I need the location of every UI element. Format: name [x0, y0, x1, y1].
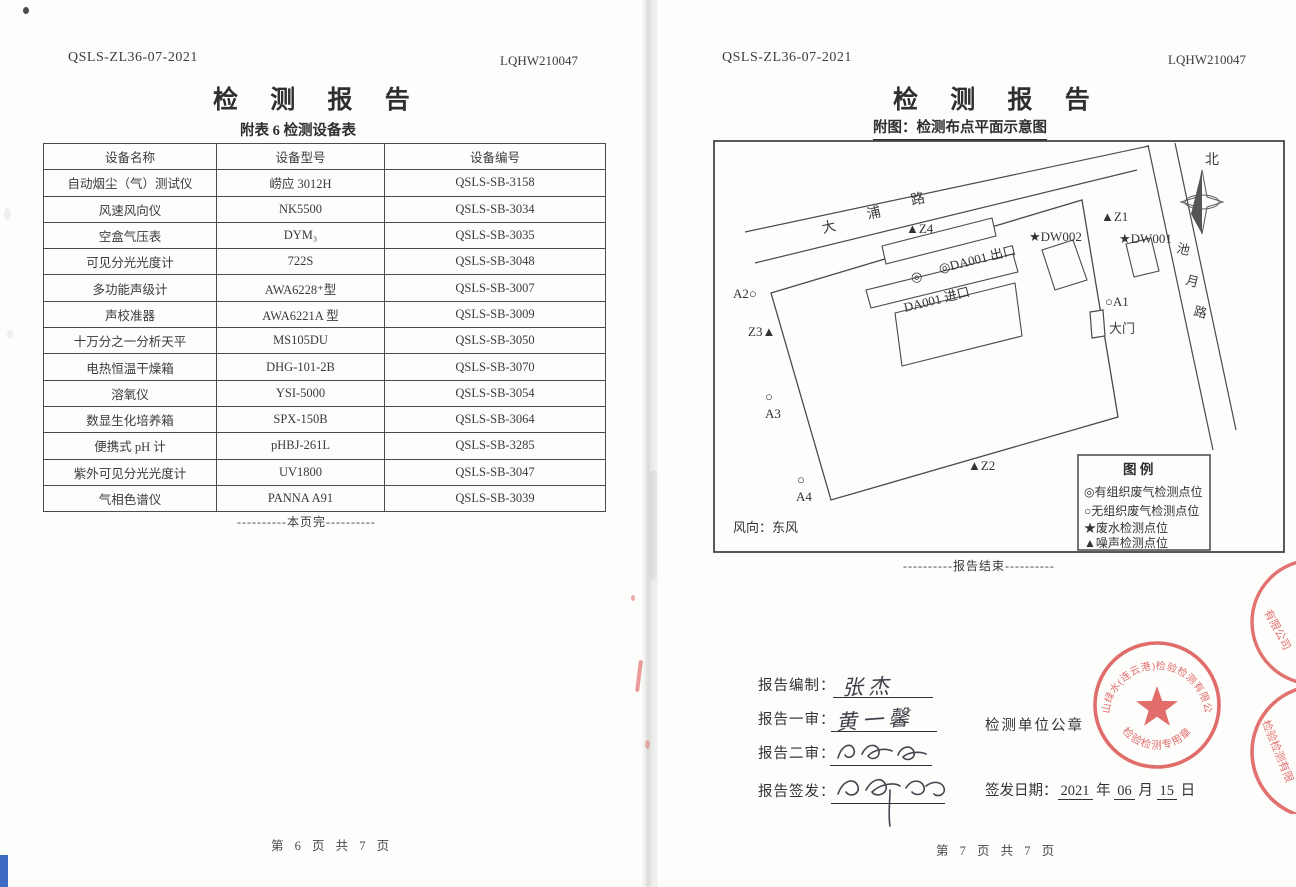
svg-text:检验检测专用章: 检验检测专用章: [1120, 725, 1195, 752]
legend-item: ★废水检测点位: [1084, 520, 1168, 535]
table-row: 十万分之一分析天平MS105DUQSLS-SB-3050: [44, 328, 606, 354]
equipment-table: 设备名称 设备型号 设备编号 自动烟尘（气）测试仪崂应 3012HQSLS-SB…: [43, 143, 606, 512]
cell-name: 多功能声级计: [44, 275, 217, 301]
issued-by-signature: [830, 768, 960, 830]
marker-a1: ○A1: [1105, 294, 1129, 309]
issue-date-month: 06: [1114, 783, 1135, 800]
cell-no: QSLS-SB-3158: [385, 170, 606, 196]
month-suffix: 月: [1138, 783, 1153, 799]
road-name-char: 路: [1192, 303, 1208, 321]
cell-model: DHG-101-2B: [217, 354, 385, 380]
marker-dw002: ★DW002: [1029, 229, 1082, 244]
cell-name: 空盒气压表: [44, 222, 217, 248]
report-number: LQHW210047: [500, 53, 578, 69]
edge-seal-fragments: 有限公司 检验检测有限: [1238, 552, 1296, 814]
north-label: 北: [1205, 152, 1219, 168]
day-suffix: 日: [1181, 783, 1196, 799]
page-number: 第 7 页 共 7 页: [936, 840, 1058, 859]
table-row: 气相色谱仪PANNA A91QSLS-SB-3039: [44, 485, 606, 511]
doc-code: QSLS-ZL36-07-2021: [722, 50, 852, 66]
report-end-marker: ----------报告结束----------: [903, 557, 1055, 574]
issue-date: 签发日期：2021 年 06 月 15 日: [985, 779, 1195, 800]
issue-date-year: 2021: [1058, 783, 1093, 800]
doc-code: QSLS-ZL36-07-2021: [68, 50, 198, 66]
legend-title: 图 例: [1123, 461, 1153, 477]
cell-model: AWA6221A 型: [217, 301, 385, 327]
table-row: 自动烟尘（气）测试仪崂应 3012HQSLS-SB-3158: [44, 170, 606, 196]
cell-name: 数显生化培养箱: [44, 406, 217, 432]
cell-no: QSLS-SB-3009: [385, 301, 606, 327]
cell-model: AWA6228⁺型: [217, 275, 385, 301]
second-review-signature: [832, 736, 942, 768]
diagram-subtitle: 附图：检测布点平面示意图: [873, 116, 1047, 141]
marker-a3-circle: ○: [765, 389, 773, 404]
table-row: 便携式 pH 计pHBJ-261LQSLS-SB-3285: [44, 433, 606, 459]
table-row: 可见分光光度计722SQSLS-SB-3048: [44, 249, 606, 275]
company-seal-stamp: 青山绿水(连云港)检验检测有限公司 检验检测专用章: [1087, 635, 1227, 775]
cell-name: 紫外可见分光光度计: [44, 459, 217, 485]
cell-model: UV1800: [217, 459, 385, 485]
col-header-name: 设备名称: [44, 144, 217, 170]
first-review-label: 报告一审：: [758, 708, 836, 729]
edge-seal-text: 检验检测有限: [1259, 718, 1296, 784]
cell-model: YSI-5000: [217, 380, 385, 406]
marker-dw001: ★DW001: [1119, 231, 1172, 246]
red-ink-bleed: [631, 595, 635, 601]
table-row: 多功能声级计AWA6228⁺型QSLS-SB-3007: [44, 275, 606, 301]
cell-name: 溶氧仪: [44, 380, 217, 406]
marker-a4-circle: ○: [797, 472, 805, 487]
scan-smudge: [7, 330, 13, 339]
gate-rect: [1090, 310, 1105, 338]
road-name-char: 月: [1184, 272, 1200, 290]
cell-no: QSLS-SB-3285: [385, 433, 606, 459]
issue-date-label: 签发日期：: [985, 783, 1058, 799]
marker-z1: ▲Z1: [1101, 209, 1128, 224]
road-name-char: 池: [1175, 240, 1191, 258]
seal-type-text: 检验检测专用章: [1120, 725, 1195, 752]
unit-seal-caption: 检测单位公章: [985, 714, 1084, 735]
marker-z3: Z3▲: [748, 324, 775, 339]
table-row: 紫外可见分光光度计UV1800QSLS-SB-3047: [44, 459, 606, 485]
wind-direction: 风向：东风: [733, 520, 798, 535]
page-title: 检 测 报 告: [213, 80, 423, 116]
col-header-model: 设备型号: [217, 144, 385, 170]
site-layout-diagram: 大 浦 路 池 月 路 北 大门 ▲Z4 ★DW002 ▲Z1 ★DW001 ◎…: [713, 140, 1285, 553]
scan-speck: [23, 7, 29, 14]
marker-a3: A3: [765, 406, 781, 421]
legend-item: ○无组织废气检测点位: [1084, 503, 1199, 518]
red-ink-bleed: [645, 740, 650, 749]
table-header-row: 设备名称 设备型号 设备编号: [44, 144, 606, 170]
marker-z2: ▲Z2: [968, 458, 995, 473]
cell-no: QSLS-SB-3048: [385, 249, 606, 275]
scan-smudge: [4, 208, 11, 220]
cell-no: QSLS-SB-3035: [385, 222, 606, 248]
cell-name: 可见分光光度计: [44, 249, 217, 275]
table-row: 风速风向仪NK5500QSLS-SB-3034: [44, 196, 606, 222]
gate-label: 大门: [1109, 321, 1135, 336]
cell-no: QSLS-SB-3054: [385, 380, 606, 406]
seal-star-icon: [1136, 686, 1178, 726]
cell-model: SPX-150B: [217, 406, 385, 432]
table-row: 溶氧仪YSI-5000QSLS-SB-3054: [44, 380, 606, 406]
chiyue-road-line: [1148, 145, 1213, 450]
dapu-road-line: [745, 146, 1149, 232]
page-end-marker: ----------本页完----------: [237, 513, 376, 530]
year-suffix: 年: [1096, 783, 1111, 799]
cell-no: QSLS-SB-3007: [385, 275, 606, 301]
cell-model: 722S: [217, 249, 385, 275]
cell-name: 声校准器: [44, 301, 217, 327]
building: [1042, 240, 1087, 290]
prepared-by-signature: 张杰: [841, 670, 894, 702]
cell-name: 十万分之一分析天平: [44, 328, 217, 354]
report-page-6: QSLS-ZL36-07-2021 LQHW210047 检 测 报 告 附表 …: [0, 0, 646, 887]
cell-name: 便携式 pH 计: [44, 433, 217, 459]
marker-a2: A2○: [733, 286, 757, 301]
table-row: 数显生化培养箱SPX-150BQSLS-SB-3064: [44, 406, 606, 432]
page-title: 检 测 报 告: [893, 80, 1103, 116]
cell-name: 气相色谱仪: [44, 485, 217, 511]
table-row: 电热恒温干燥箱DHG-101-2BQSLS-SB-3070: [44, 354, 606, 380]
legend-box: 图 例 ◎有组织废气检测点位 ○无组织废气检测点位 ★废水检测点位 ▲噪声检测点…: [1078, 455, 1210, 550]
marker-z4: ▲Z4: [906, 221, 934, 236]
cell-model: pHBJ-261L: [217, 433, 385, 459]
scan-smudge: [650, 470, 657, 580]
cell-model: MS105DU: [217, 328, 385, 354]
page-number: 第 6 页 共 7 页: [271, 835, 393, 854]
marker-organized-symbol: ◎: [911, 269, 922, 284]
cell-no: QSLS-SB-3039: [385, 485, 606, 511]
cell-name: 自动烟尘（气）测试仪: [44, 170, 217, 196]
edge-seal-text: 有限公司: [1261, 607, 1294, 652]
cell-name: 电热恒温干燥箱: [44, 354, 217, 380]
cell-model: 崂应 3012H: [217, 170, 385, 196]
cell-no: QSLS-SB-3070: [385, 354, 606, 380]
cell-no: QSLS-SB-3034: [385, 196, 606, 222]
cell-no: QSLS-SB-3047: [385, 459, 606, 485]
cell-name: 风速风向仪: [44, 196, 217, 222]
road-name-char: 浦: [865, 204, 882, 223]
page-seam: [642, 0, 658, 887]
legend-item: ◎有组织废气检测点位: [1084, 484, 1202, 499]
report-number: LQHW210047: [1168, 52, 1246, 68]
report-page-7: QSLS-ZL36-07-2021 LQHW210047 检 测 报 告 附图：…: [650, 0, 1296, 887]
road-name-char: 路: [909, 190, 926, 209]
col-header-no: 设备编号: [385, 144, 606, 170]
issue-date-day: 15: [1157, 783, 1178, 800]
second-review-label: 报告二审：: [758, 742, 836, 763]
cell-model: NK5500: [217, 196, 385, 222]
table-row: 空盒气压表DYM₃QSLS-SB-3035: [44, 222, 606, 248]
cell-model: PANNA A91: [217, 485, 385, 511]
cell-no: QSLS-SB-3064: [385, 406, 606, 432]
first-review-signature: 黄一馨: [835, 701, 915, 736]
prepared-by-label: 报告编制：: [758, 674, 836, 695]
road-name-char: 大: [820, 218, 837, 237]
cell-no: QSLS-SB-3050: [385, 328, 606, 354]
issued-by-label: 报告签发：: [758, 780, 836, 801]
table-subtitle: 附表 6 检测设备表: [240, 119, 356, 140]
table-row: 声校准器AWA6221A 型QSLS-SB-3009: [44, 301, 606, 327]
cell-model: DYM₃: [217, 222, 385, 248]
blue-corner-artifact: [0, 855, 8, 887]
marker-a4: A4: [796, 489, 812, 504]
legend-item: ▲噪声检测点位: [1084, 535, 1168, 550]
